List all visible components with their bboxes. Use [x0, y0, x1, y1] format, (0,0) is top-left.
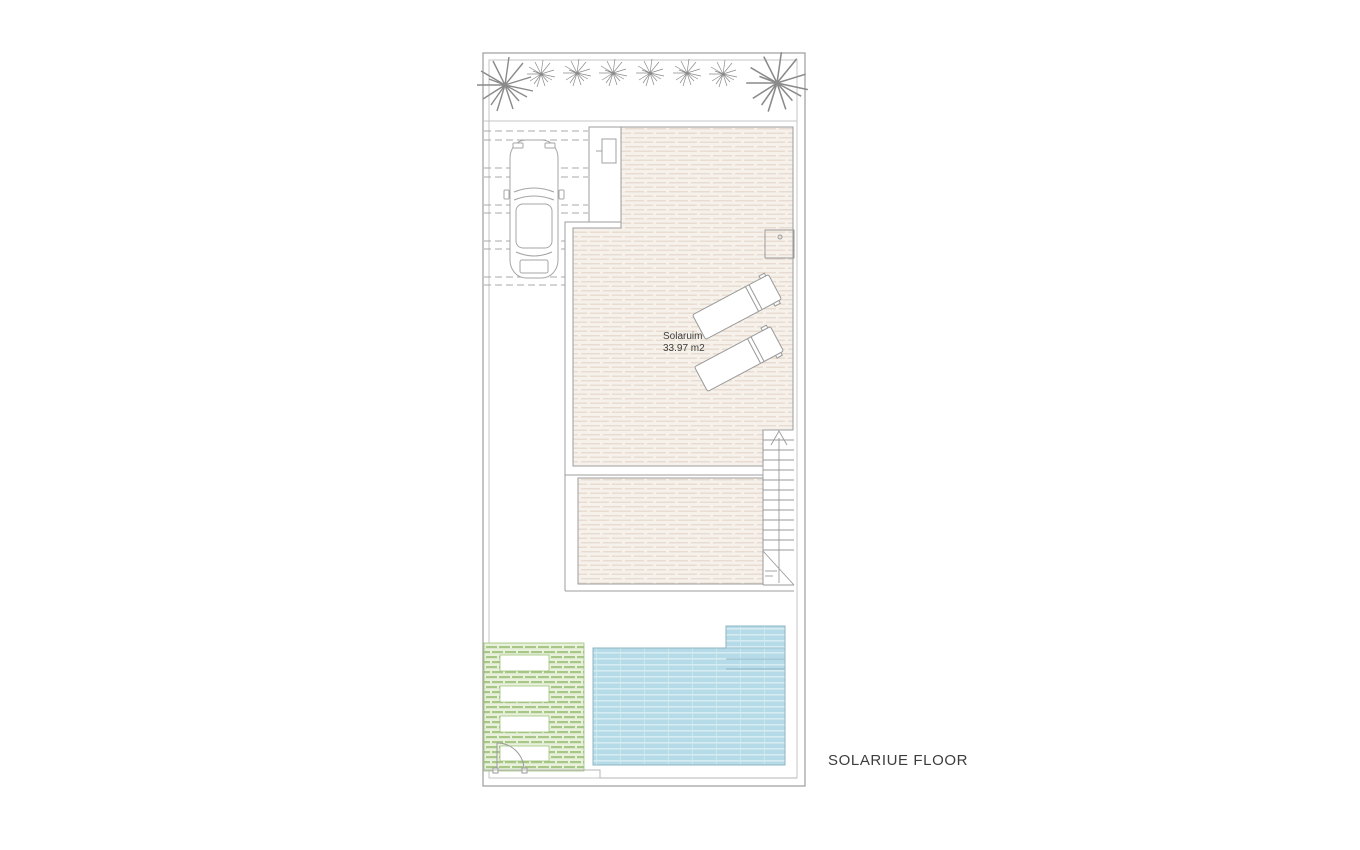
pool	[593, 626, 785, 765]
staircase	[763, 430, 794, 585]
room-label: Solaruim 33.97 m2	[663, 331, 705, 354]
plant-icon	[636, 59, 664, 86]
planter	[500, 655, 549, 671]
floor-plan-canvas: Solaruim 33.97 m2	[0, 0, 1360, 850]
room-label-area: 33.97 m2	[663, 343, 705, 354]
plant-icon	[563, 59, 591, 86]
car-icon	[504, 140, 564, 278]
lawn-area	[484, 643, 584, 771]
plants-row	[477, 52, 808, 111]
planter	[500, 746, 549, 761]
plant-icon	[599, 59, 627, 86]
planter	[500, 716, 549, 732]
lower-deck	[578, 478, 763, 584]
plant-icon	[709, 60, 737, 87]
floor-plan-drawing: Solaruim 33.97 m2	[0, 0, 1360, 850]
plant-icon	[477, 57, 533, 111]
plant-icon	[746, 52, 808, 111]
plant-icon	[673, 59, 701, 86]
plant-icon	[527, 60, 555, 87]
room-label-name: Solaruim	[663, 331, 702, 342]
planter	[500, 686, 549, 702]
floor-title: SOLARIUE FLOOR	[828, 752, 968, 769]
